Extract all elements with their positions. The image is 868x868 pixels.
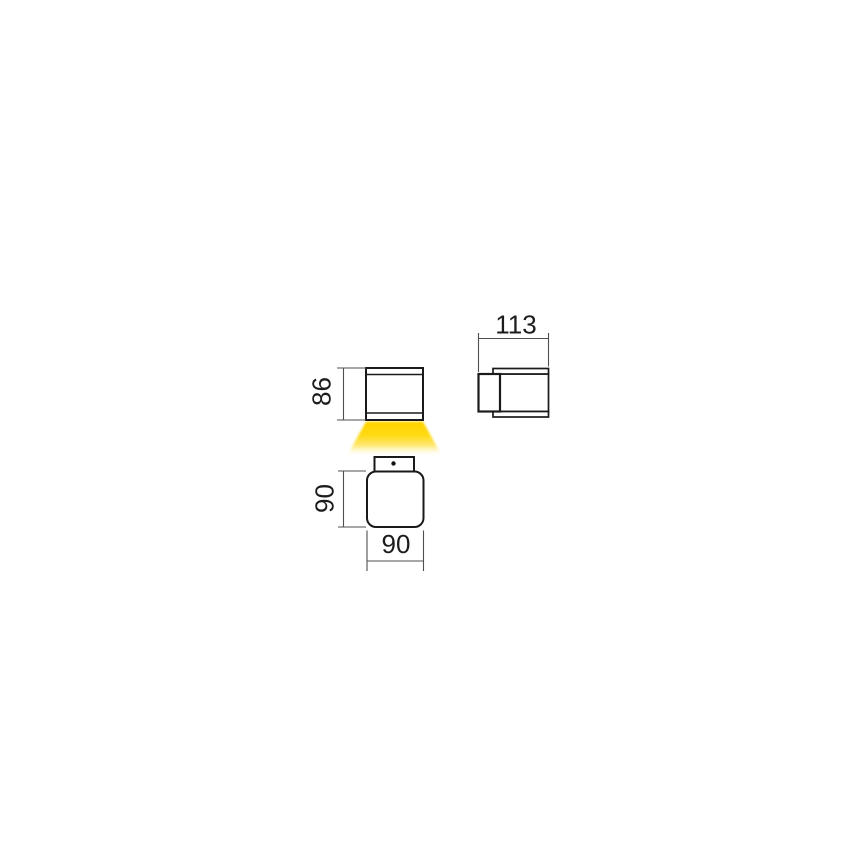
light-beam	[348, 422, 442, 456]
front-body-outline	[366, 368, 423, 420]
drawing-canvas: 86 113 90	[0, 0, 868, 868]
dimension-front-height: 86	[307, 368, 367, 420]
side-top-band	[493, 369, 549, 375]
plan-body-outline	[367, 472, 424, 528]
plan-width-label: 90	[382, 529, 411, 559]
front-view	[366, 368, 423, 420]
side-wall-bracket	[479, 374, 501, 412]
front-height-label: 86	[307, 377, 337, 406]
side-body-outline	[500, 374, 549, 412]
dimension-plan-width: 90	[367, 529, 424, 571]
dimension-side-width: 113	[479, 310, 549, 373]
side-width-label: 113	[495, 310, 536, 340]
plan-screw-dot	[391, 461, 395, 465]
plan-view	[367, 457, 424, 527]
side-bottom-band	[493, 412, 549, 418]
side-view	[479, 369, 549, 418]
dimension-plan-height: 90	[310, 471, 367, 527]
plan-height-label: 90	[310, 484, 340, 513]
technical-drawing: 86 113 90	[0, 0, 868, 868]
